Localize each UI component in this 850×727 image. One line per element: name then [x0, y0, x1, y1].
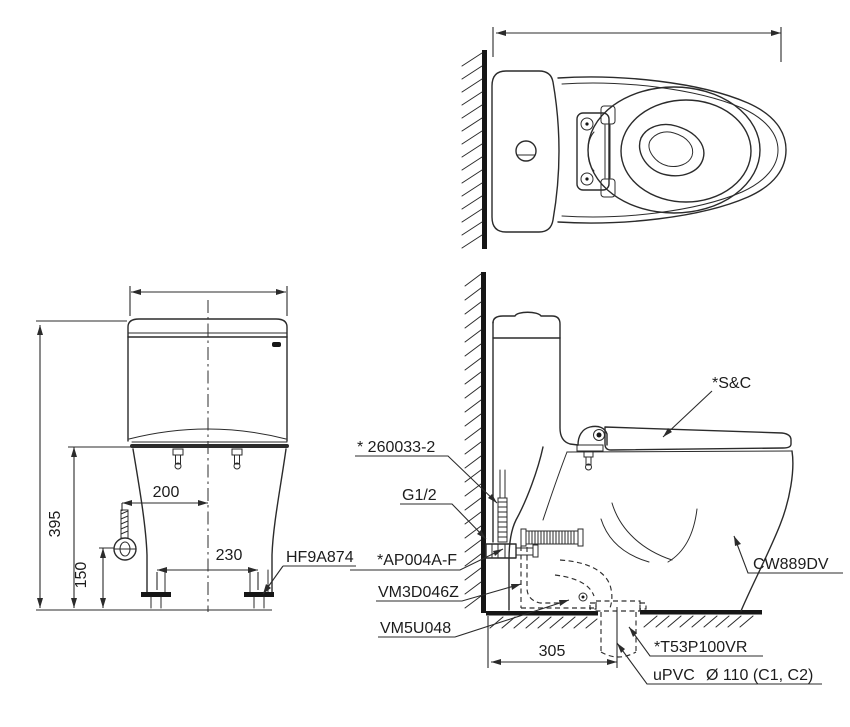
dim-valve-offset: 200 — [153, 484, 180, 501]
bowl-outer-profile — [741, 451, 793, 611]
wall-section — [462, 50, 487, 249]
bolt-cap-label: HF9A874 — [263, 549, 356, 594]
bowl-inner-curves — [601, 503, 697, 562]
toilet-profile — [493, 312, 793, 611]
seat-profile — [577, 426, 791, 470]
label-seal: VM3D046Z — [378, 584, 459, 601]
trap-assembly — [521, 529, 646, 657]
front-view: 395 150 200 230 HF9A874 — [36, 286, 356, 612]
label-stop-valve: *AP004A-F — [377, 552, 457, 569]
dim-bolt-spacing: 230 — [216, 547, 243, 564]
side-view: 305 *S&C * 260033-2 G1/2 *AP004A-F VM3D0… — [350, 272, 843, 684]
drain-pipe — [601, 612, 636, 657]
seat-hinge-plan — [577, 106, 615, 197]
label-pipe-material: uPVC — [653, 667, 695, 684]
supply-valve-front — [114, 510, 136, 560]
stop-valve — [486, 544, 516, 558]
label-drain-joint: *T53P100VR — [654, 639, 747, 656]
label-hose: * 260033-2 — [357, 439, 435, 456]
width-dimension — [493, 27, 781, 62]
floor-hatching — [490, 616, 753, 628]
top-view — [462, 27, 786, 249]
brand-logo — [272, 342, 281, 347]
part-labels: *S&C * 260033-2 G1/2 *AP004A-F VM3D046Z … — [350, 375, 843, 684]
label-seat-cover: *S&C — [712, 375, 751, 392]
label-supply-thread: G1/2 — [402, 487, 437, 504]
label-bolt-cap: HF9A874 — [286, 549, 354, 566]
dim-rough-in: 305 — [539, 643, 566, 660]
wall-hatching — [462, 53, 482, 248]
label-bowl-model: CW889DV — [753, 556, 829, 573]
drawing-canvas: 395 150 200 230 HF9A874 — [0, 0, 850, 727]
label-pipe-size: Ø 110 (C1, C2) — [706, 667, 813, 684]
technical-drawing: 395 150 200 230 HF9A874 — [0, 0, 850, 727]
rough-in-dimension: 305 — [488, 607, 617, 668]
wall-hatching — [465, 274, 481, 608]
dim-rim-height: 395 — [47, 511, 64, 538]
supply-assembly — [486, 470, 538, 558]
floor-section — [486, 610, 762, 628]
dim-valve-height: 150 — [73, 562, 90, 589]
bowl-plan — [558, 77, 786, 223]
seat-hinge — [578, 426, 607, 445]
tank-plan — [492, 71, 559, 232]
label-flange: VM5U048 — [380, 620, 451, 637]
flush-button — [516, 141, 536, 161]
